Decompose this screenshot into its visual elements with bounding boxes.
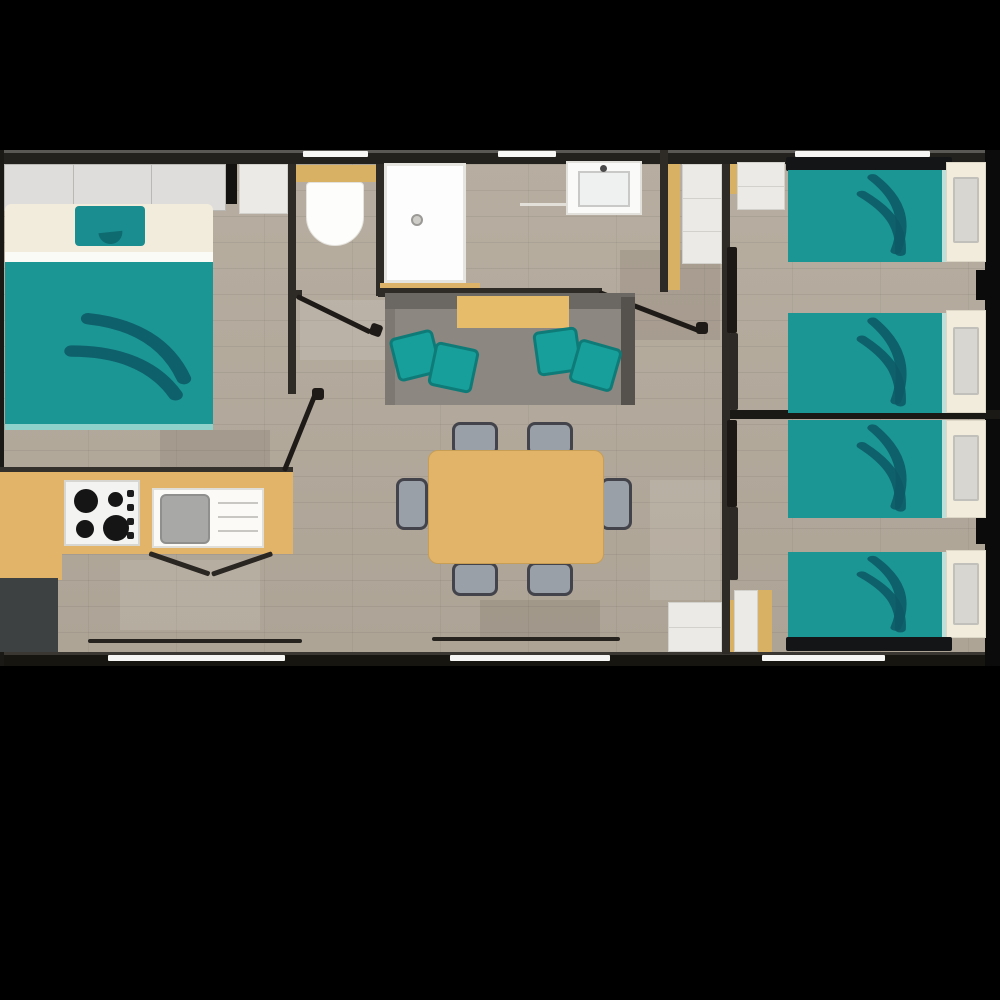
toilet-cistern [296, 165, 376, 182]
bed-head-rail [786, 637, 952, 651]
bedroom-wardrobe [734, 590, 758, 652]
bed-pillow [953, 435, 979, 501]
sliding-door-leaf [729, 333, 738, 410]
corner-cabinet [668, 602, 722, 652]
pillow-fold [98, 231, 123, 245]
burner [74, 489, 98, 513]
kitchen-counter-return [0, 554, 62, 580]
sliding-door-leaf [727, 420, 737, 507]
wc-left-wall [288, 164, 296, 394]
bed-pillow [953, 563, 979, 625]
bathroom-wall-panel [668, 164, 680, 290]
single-bed-duvet [788, 420, 946, 518]
bedroom-door-hinge [312, 388, 324, 400]
window-frame-rail [432, 637, 620, 641]
single-bed-duvet [788, 552, 946, 638]
drainer-groove [218, 530, 258, 532]
dining-chair [600, 478, 632, 530]
exterior-wall-right [985, 150, 1000, 666]
floor-plank-patch [160, 430, 270, 470]
sofa [385, 293, 635, 405]
bedroom-closet [737, 162, 785, 210]
closet-seam [738, 186, 784, 187]
wall-stub [226, 164, 237, 204]
dining-chair [527, 562, 573, 596]
toilet-bowl [306, 182, 364, 246]
kitchen-sink [152, 488, 264, 548]
window-bottom-2 [450, 655, 610, 661]
sofa-arm-right [621, 297, 635, 405]
wc-right-wall [376, 164, 384, 296]
bathroom-right-wall [660, 150, 668, 292]
hob-knob [127, 504, 134, 511]
closet-shelf-seam [683, 231, 721, 232]
dresser [239, 164, 288, 214]
bed-pillow [75, 206, 145, 246]
bedroom-wardrobe-side [758, 590, 772, 652]
shower-drain [411, 214, 423, 226]
single-bed-duvet [788, 313, 946, 413]
duvet-feather-motif [788, 313, 942, 413]
sofa-shelf [457, 296, 569, 328]
window-frame-rail [88, 639, 302, 643]
washbasin [566, 161, 642, 215]
shower-tray [384, 163, 466, 283]
sliding-door-leaf [729, 507, 738, 580]
washbasin-faucet [600, 165, 607, 172]
duvet-feather-motif [788, 420, 942, 518]
sofa-cushion [427, 341, 480, 394]
burner [103, 515, 129, 541]
floor-plank-patch [120, 560, 260, 630]
floor-plank-patch [480, 600, 600, 640]
hob-knob [127, 532, 134, 539]
dining-chair [396, 478, 428, 530]
floor-plank-patch [650, 480, 720, 600]
cabinet-seam [669, 627, 721, 628]
window-bottom-1 [108, 655, 285, 661]
cooktop-hob [64, 480, 140, 546]
single-bed-head [946, 162, 986, 262]
closet-shelf-seam [683, 198, 721, 199]
burner [76, 520, 94, 538]
single-bed-head [946, 420, 986, 518]
bed-pillow [953, 327, 979, 395]
drainer-groove [218, 516, 258, 518]
sink-basin [160, 494, 210, 544]
living-door-hinge [696, 322, 708, 334]
single-bed-duvet [788, 170, 946, 262]
double-bed [5, 204, 213, 432]
duvet-feather-motif [5, 262, 213, 424]
single-bed-head [946, 550, 986, 638]
single-bed-head [946, 310, 986, 413]
bed-head-rail [786, 157, 952, 171]
window-top-2 [498, 151, 556, 157]
bed-pillow [953, 177, 979, 243]
floor-plan-canvas [0, 0, 1000, 1000]
sliding-door-leaf [727, 247, 737, 333]
duvet-feather-motif [788, 552, 942, 638]
hob-knob [127, 518, 134, 525]
dining-chair [452, 562, 498, 596]
burner [108, 492, 123, 507]
dining-table [428, 450, 604, 564]
duvet-feather-motif [788, 170, 942, 262]
window-top-1 [303, 151, 368, 157]
fridge [0, 578, 58, 652]
bed-duvet [5, 262, 213, 430]
window-bottom-3 [762, 655, 885, 661]
hob-knob [127, 490, 134, 497]
washbasin-bowl [578, 171, 630, 207]
hall-closet [682, 164, 722, 264]
right-wall-vent [976, 270, 1000, 300]
drainer-groove [218, 502, 258, 504]
